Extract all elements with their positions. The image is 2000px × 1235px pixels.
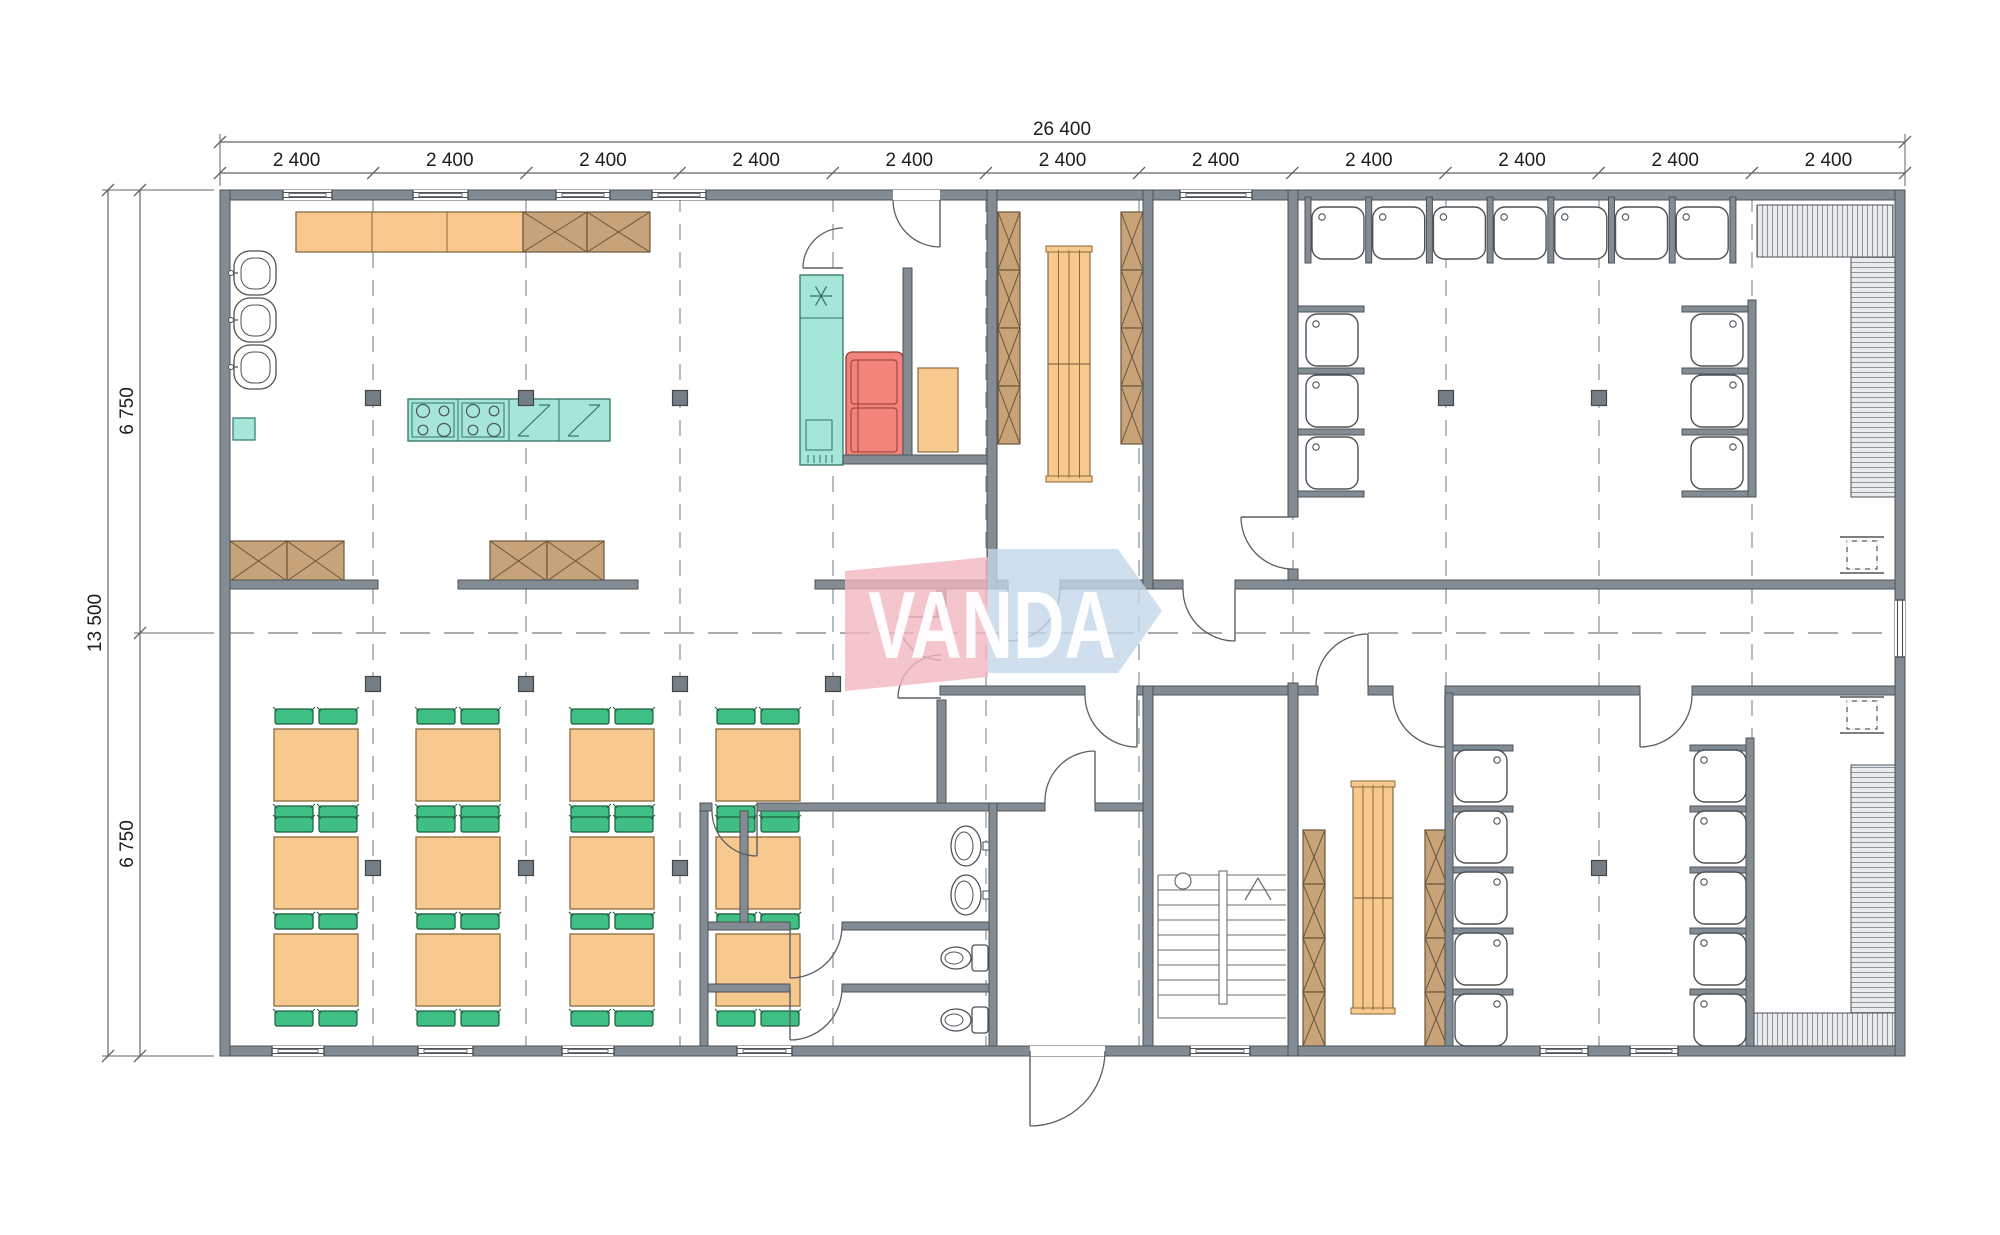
dimension-label: 6 750 (117, 820, 138, 868)
sink-icon (228, 345, 276, 389)
shower-stall (1616, 207, 1668, 259)
wall (1288, 569, 1298, 580)
wall (220, 190, 1905, 200)
storage-cabinet (287, 541, 344, 581)
wall (843, 455, 990, 464)
door (1045, 751, 1095, 803)
chair (273, 1009, 315, 1026)
stall-partition (1305, 197, 1311, 263)
sink-icon (951, 826, 989, 866)
door (1030, 1051, 1105, 1126)
shower-stall (1455, 994, 1507, 1046)
column (366, 391, 381, 406)
chair (569, 912, 611, 929)
column (1592, 861, 1607, 876)
window (556, 190, 610, 200)
wall (1095, 803, 1143, 811)
chair (569, 1009, 611, 1026)
storage-cabinet (230, 541, 287, 581)
chair (459, 707, 501, 724)
wall (1746, 738, 1754, 1046)
shelf-unit (1121, 386, 1143, 444)
chair (459, 912, 501, 929)
bench-hatch (1851, 765, 1895, 1023)
dimension-label: 2 400 (1805, 150, 1853, 171)
shelf-unit (998, 386, 1020, 444)
stall-partition (1426, 197, 1432, 263)
wall (757, 803, 1045, 811)
bench-hatch (1757, 205, 1893, 257)
shower-stall (1312, 207, 1364, 259)
shelf-unit (1425, 938, 1447, 992)
door (1640, 695, 1692, 747)
chair (715, 815, 757, 832)
wall (937, 700, 946, 807)
dining-table-group (569, 707, 655, 821)
wall (1445, 686, 1640, 695)
window (413, 190, 468, 200)
column (366, 677, 381, 692)
chair (759, 1009, 801, 1026)
shelf-unit (1425, 992, 1447, 1046)
chair (759, 815, 801, 832)
stall-partition (1298, 491, 1364, 497)
chair (317, 707, 359, 724)
column (366, 861, 381, 876)
chair (273, 815, 315, 832)
dimension-label: 2 400 (886, 150, 934, 171)
chair (459, 1009, 501, 1026)
chair (569, 815, 611, 832)
toilet-icon (941, 945, 988, 971)
bench (1046, 246, 1092, 482)
window (1630, 1046, 1678, 1056)
dining-table-group (569, 912, 655, 1026)
shelf-unit (1121, 212, 1143, 270)
chair (273, 912, 315, 929)
door-opening (1030, 1046, 1105, 1056)
shelf-unit (1121, 270, 1143, 328)
column (1439, 391, 1454, 406)
shelf-unit (1303, 992, 1325, 1046)
window (283, 190, 332, 200)
dining-table-group (273, 912, 359, 1026)
shower-stall (1694, 994, 1746, 1046)
door (1393, 695, 1445, 747)
shelf-unit (998, 270, 1020, 328)
door (803, 228, 843, 268)
window (272, 1046, 324, 1056)
chair (317, 815, 359, 832)
chair (613, 912, 655, 929)
sink-icon (951, 875, 989, 915)
column (519, 677, 534, 692)
shower-stall (1433, 207, 1485, 259)
shower-stall (1694, 750, 1746, 802)
door (1241, 517, 1293, 569)
shower-stall (1691, 437, 1743, 489)
dimension-label: 2 400 (1498, 150, 1546, 171)
chair (415, 815, 457, 832)
dining-table-group (569, 815, 655, 929)
door (1085, 695, 1137, 747)
shower-stall (1676, 207, 1728, 259)
stall-partition (1298, 368, 1364, 374)
shower-stall (1455, 811, 1507, 863)
dimension-label: 26 400 (1033, 119, 1091, 140)
dimension-label: 13 500 (85, 594, 106, 652)
dimension-label: 2 400 (426, 150, 474, 171)
chair (415, 1009, 457, 1026)
stall-partition (1682, 429, 1748, 435)
stall-partition (1682, 306, 1748, 312)
stall-partition (1487, 197, 1493, 263)
wall (700, 811, 708, 1046)
chair (613, 815, 655, 832)
washbasins (951, 826, 989, 915)
column (673, 861, 688, 876)
service-shaft-symbol (1840, 537, 1884, 573)
bench (1351, 781, 1395, 1014)
stall-partition (1730, 197, 1736, 263)
staircase (1158, 871, 1286, 1018)
dimension-label: 2 400 (732, 150, 780, 171)
dimension-label: 2 400 (273, 150, 321, 171)
stall-partition (1682, 368, 1748, 374)
shower-stall (1373, 207, 1425, 259)
wall (708, 922, 790, 930)
shower-stall (1694, 811, 1746, 863)
window (652, 190, 706, 200)
wall (700, 803, 712, 811)
chair (415, 707, 457, 724)
service-shaft-symbol (1840, 697, 1884, 733)
dimension-label: 2 400 (1651, 150, 1699, 171)
storage-cabinet (490, 541, 547, 581)
stall-partition (1609, 197, 1615, 263)
stall-partition (1298, 429, 1364, 435)
dimension-label: 2 400 (1345, 150, 1393, 171)
shower-stall (1691, 314, 1743, 366)
dining-table-group (415, 815, 501, 929)
wall (1143, 190, 1153, 589)
wall (1748, 300, 1756, 497)
freezer-cabinet (800, 275, 843, 465)
shower-stall (1455, 750, 1507, 802)
chair (715, 1009, 757, 1026)
kitchen-island (408, 399, 610, 441)
shelf-unit (998, 212, 1020, 270)
bench-hatch (1851, 257, 1895, 497)
wall (940, 686, 1085, 695)
watermark: VANDA (845, 549, 1162, 691)
chair (317, 1009, 359, 1026)
service-cart (233, 418, 255, 440)
stall-partition (1366, 197, 1372, 263)
shelf-unit (1303, 884, 1325, 938)
small-table (918, 368, 958, 452)
wall (989, 803, 997, 1046)
dining-table-group (415, 912, 501, 1026)
window (1895, 600, 1905, 657)
wall (458, 580, 638, 589)
dining-table-group (715, 815, 801, 929)
chair (569, 707, 611, 724)
stall-partition (1298, 306, 1364, 312)
chair (415, 912, 457, 929)
shelf-unit (1121, 328, 1143, 386)
window (1190, 1046, 1250, 1056)
column (519, 861, 534, 876)
wall (708, 984, 790, 992)
stall-partition (1682, 491, 1748, 497)
chair (759, 707, 801, 724)
shelf-unit (1425, 884, 1447, 938)
dimension-label: 6 750 (117, 387, 138, 435)
door-opening (893, 190, 940, 200)
shower-stall (1691, 375, 1743, 427)
shelf-unit (998, 328, 1020, 386)
wall (1288, 683, 1298, 1056)
column (1592, 391, 1607, 406)
stall-partition (1548, 197, 1554, 263)
wall (1143, 686, 1153, 1046)
wall (903, 268, 912, 464)
dimension-label: 2 400 (1192, 150, 1240, 171)
window (1180, 190, 1252, 200)
door (893, 200, 940, 247)
shower-stall (1306, 437, 1358, 489)
shower-stall (1494, 207, 1546, 259)
dimension-label: 2 400 (1039, 150, 1087, 171)
sink-icon (228, 298, 276, 342)
floor-plan-drawing: 26 4002 4002 4002 4002 4002 4002 4002 40… (0, 0, 2000, 1235)
shelf-unit (1303, 830, 1325, 884)
shower-stall (1455, 872, 1507, 924)
shower-stall (1694, 933, 1746, 985)
wall (230, 580, 378, 589)
storage-cabinet (523, 212, 587, 252)
wall (842, 984, 989, 992)
wall (1692, 686, 1895, 695)
shower-stall (1455, 933, 1507, 985)
shower-stall (1306, 314, 1358, 366)
wall (987, 190, 997, 589)
wall (842, 922, 989, 930)
storage-cabinet (587, 212, 650, 252)
door (1316, 634, 1368, 686)
red-appliance (846, 352, 903, 460)
column (673, 677, 688, 692)
shower-stall (1694, 872, 1746, 924)
column (519, 391, 534, 406)
chair (715, 707, 757, 724)
window (562, 1046, 614, 1056)
stall-partition (1669, 197, 1675, 263)
column (673, 391, 688, 406)
kitchen-counter (296, 212, 523, 252)
wall (1288, 190, 1298, 517)
shelf-unit (1303, 938, 1325, 992)
dining-table-group (415, 707, 501, 821)
wall (1445, 693, 1453, 1046)
window (737, 1046, 792, 1056)
sink-icon (228, 251, 276, 295)
storage-cabinet (547, 541, 604, 581)
column (826, 677, 841, 692)
window (1540, 1046, 1588, 1056)
chair (317, 912, 359, 929)
shower-stall (1555, 207, 1607, 259)
window (418, 1046, 473, 1056)
dining-table-group (273, 815, 359, 929)
chair (459, 815, 501, 832)
chair (613, 1009, 655, 1026)
shower-stall (1306, 375, 1358, 427)
wall (740, 811, 748, 922)
dining-table-group (273, 707, 359, 821)
toilet-icon (941, 1007, 988, 1033)
watermark-text: VANDA (868, 572, 1116, 679)
shelf-unit (1425, 830, 1447, 884)
wall (1368, 686, 1393, 695)
chair (273, 707, 315, 724)
dimension-label: 2 400 (579, 150, 627, 171)
chair (613, 707, 655, 724)
floor-plan-page: 26 4002 4002 4002 4002 4002 4002 4002 40… (0, 0, 2000, 1235)
wall (1235, 580, 1895, 589)
